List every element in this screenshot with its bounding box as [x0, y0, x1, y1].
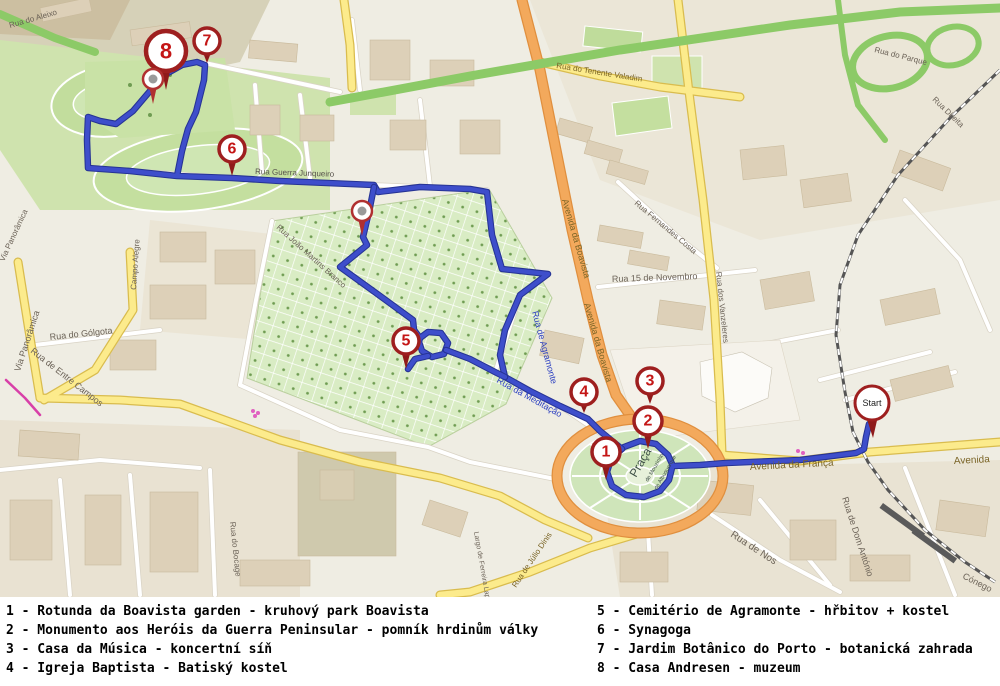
legend-item: 2 - Monumento aos Heróis da Guerra Penin… [6, 621, 538, 640]
street-label: Avenida [954, 454, 991, 467]
legend-item: 5 - Cemitério de Agramonte - hřbitov + k… [597, 602, 973, 621]
photo-pin-dot [358, 207, 367, 216]
marker-number: 6 [228, 141, 237, 158]
legend-left-column: 1 - Rotunda da Boavista garden - kruhový… [6, 602, 538, 678]
marker-number: 5 [402, 333, 411, 350]
legend: 1 - Rotunda da Boavista garden - kruhový… [0, 597, 1000, 686]
legend-item: 4 - Igreja Baptista - Batiský kostel [6, 659, 538, 678]
legend-item: 3 - Casa da Música - koncertní síň [6, 640, 538, 659]
legend-item: 8 - Casa Andresen - muzeum [597, 659, 973, 678]
marker-number: 2 [644, 413, 653, 430]
legend-item: 7 - Jardim Botânico do Porto - botanická… [597, 640, 973, 659]
legend-item: 6 - Synagoga [597, 621, 973, 640]
marker-number: 1 [602, 444, 611, 461]
photo-pin-dot [149, 75, 158, 84]
map-canvas[interactable]: Rua do AleixoVia PanorâmicaVia Panorâmic… [0, 0, 1000, 597]
legend-right-column: 5 - Cemitério de Agramonte - hřbitov + k… [597, 602, 973, 678]
marker-number: 3 [646, 373, 655, 390]
map-viewport[interactable]: Rua do AleixoVia PanorâmicaVia Panorâmic… [0, 0, 1000, 597]
legend-item: 1 - Rotunda da Boavista garden - kruhový… [6, 602, 538, 621]
marker-number: 4 [580, 384, 589, 401]
marker-number: 7 [203, 33, 212, 50]
screenshot-frame: Rua do AleixoVia PanorâmicaVia Panorâmic… [0, 0, 1000, 686]
start-marker-label: Start [862, 398, 882, 408]
marker-number: 8 [160, 39, 172, 64]
